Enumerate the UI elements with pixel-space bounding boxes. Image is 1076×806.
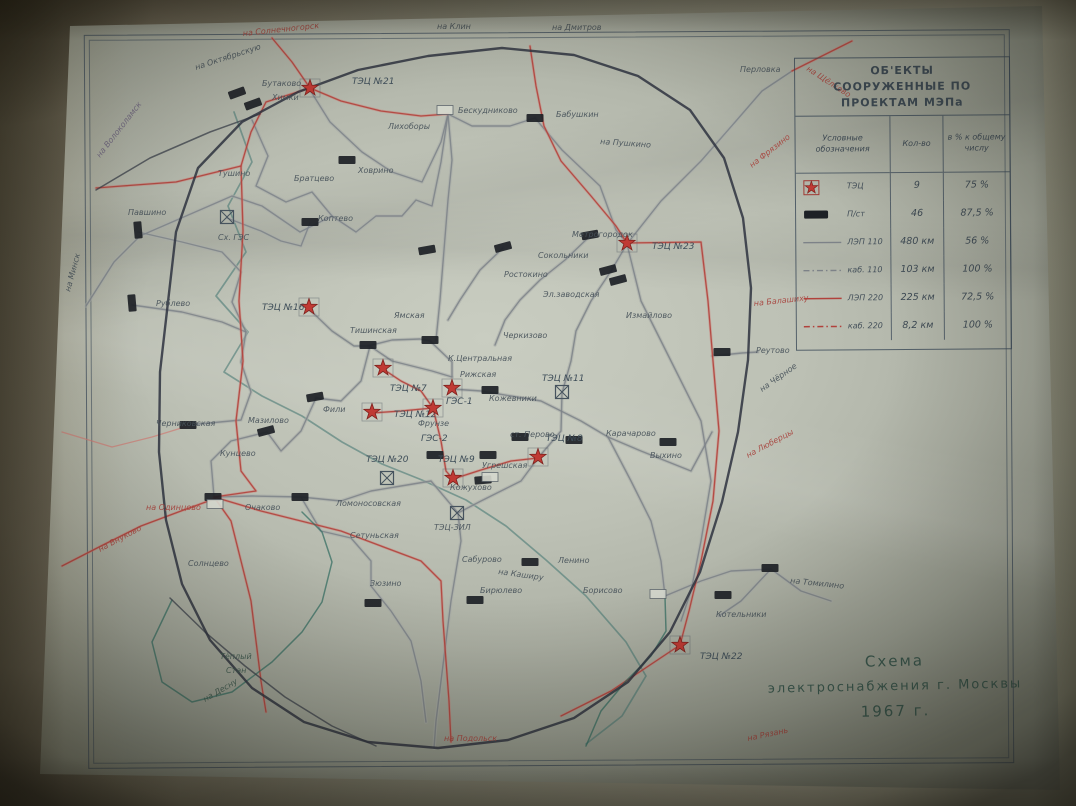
map-label: Бабушкин	[556, 110, 599, 119]
map-label: Бутаково	[262, 79, 301, 88]
map-label: Сабурово	[462, 555, 502, 564]
tec-star: ТЭЦ №22	[670, 636, 743, 662]
legend-row-pct: 100 %	[943, 255, 1010, 283]
tec-star-icon	[801, 179, 843, 195]
map-label: Кунцево	[220, 449, 256, 458]
legend-row-label: каб. 110	[847, 265, 882, 276]
map-title-block: Схема электроснабжения г. Москвы 1967 г.	[761, 649, 1028, 723]
map-label: Рижская	[460, 370, 496, 379]
legend-row-symbol: ТЭЦ	[796, 173, 890, 202]
map-label: на Люберцы	[745, 427, 795, 459]
map-label: на Солнечногорск	[242, 21, 319, 38]
line-110-icon	[801, 235, 843, 251]
power-line-110-halo	[132, 305, 246, 332]
legend-row-label: П/ст	[847, 210, 865, 221]
map-label: Перловка	[740, 65, 781, 74]
map-label: Павшино	[128, 208, 166, 217]
map-label: на Октябрьскую	[194, 42, 262, 72]
substation-marker	[292, 493, 309, 501]
legend-row-pct: 72,5 %	[944, 283, 1011, 311]
legend-row-symbol: ЛЭП 220	[797, 284, 891, 313]
substation-marker	[467, 596, 484, 604]
legend-row-symbol: каб. 220	[797, 312, 891, 341]
power-line-110-halo	[211, 398, 316, 497]
junction-box	[207, 500, 223, 509]
map-label: на Внуково	[97, 523, 143, 553]
substation-marker	[302, 218, 319, 226]
station-label: ТЭЦ №11	[542, 374, 584, 384]
power-line-110-halo	[448, 248, 503, 320]
legend-row-symbol: П/ст	[796, 201, 890, 230]
legend-col-pct: в % к общему числу	[942, 115, 1009, 172]
map-label: Фрунзе	[418, 419, 449, 428]
cable-110-icon	[801, 263, 843, 279]
map-label: Рублево	[156, 299, 190, 308]
legend-row-qty: 9	[890, 172, 943, 200]
substation-marker	[228, 86, 247, 99]
substation-marker	[360, 341, 377, 349]
map-label: Измайлово	[626, 311, 672, 320]
substation-marker	[714, 348, 731, 356]
substation-marker	[522, 558, 539, 566]
junction-box	[650, 590, 666, 599]
map-label: Ростокино	[504, 270, 548, 279]
tec-label: ТЭЦ №21	[352, 77, 394, 87]
tec-star: ТЭЦ №21	[300, 77, 394, 97]
substation-marker	[494, 241, 512, 253]
map-label: Реутово	[756, 346, 790, 355]
map-label: Коптево	[318, 214, 353, 223]
map-label: на Клин	[437, 22, 471, 31]
map-label: Сетуньская	[350, 531, 399, 540]
line-220-icon	[802, 290, 844, 306]
map-label: на Пушкино	[600, 137, 652, 150]
tec-label: ТЭЦ №16	[262, 303, 305, 313]
junction-box	[482, 473, 498, 482]
junction-box	[437, 106, 453, 115]
legend-row-symbol: каб. 110	[796, 256, 890, 285]
power-line-220-halo	[214, 497, 266, 712]
power-line-220	[214, 497, 266, 712]
tec-star: ТЭЦ №16	[262, 298, 319, 316]
photo-of-wall-map: ТЭЦ №11ТЭЦ №20ТЭЦ №21ТЭЦ №23ТЭЦ №16ТЭЦ №…	[0, 0, 1076, 806]
substation-marker	[762, 564, 779, 572]
legend-row-label: ЛЭП 220	[848, 293, 884, 304]
substation-marker	[609, 274, 627, 286]
tec-label: ГЭС-2	[421, 434, 448, 444]
map-label: ст. Перово	[510, 430, 555, 439]
map-label: Котельники	[716, 610, 766, 619]
legend-row-qty: 103 км	[890, 256, 943, 284]
map-label: ТЭЦ-ЗИЛ	[434, 523, 471, 532]
map-label: на Минск	[63, 252, 82, 292]
map-label: Ямская	[393, 311, 425, 320]
substation-marker	[660, 438, 677, 446]
substation-marker	[339, 156, 356, 164]
power-line-110-pink	[62, 426, 188, 447]
tec-label: ТЭЦ №23	[652, 242, 695, 252]
map-label: Черкизово	[503, 331, 547, 340]
legend-row-pct: 56 %	[943, 228, 1010, 256]
legend-table: ОБ'ЕКТЫ СООРУЖЕННЫЕ ПО ПРОЕКТАМ МЭПа Усл…	[794, 56, 1012, 351]
map-label: Стан	[226, 666, 246, 675]
legend-row-label: ТЭЦ	[847, 182, 864, 193]
power-line-110-halo	[316, 346, 370, 401]
map-label: Мазилово	[248, 416, 289, 425]
legend-grid: Условные обозначения Кол-во в % к общему…	[795, 115, 1011, 340]
tec-label: ГЭС-1	[446, 397, 473, 407]
map-label: Химки	[271, 93, 299, 102]
map-label: на Рязань	[747, 725, 790, 742]
map-label: на Подольск	[444, 734, 497, 743]
power-line-110-halo	[608, 437, 665, 596]
map-label: Тишинская	[350, 326, 397, 335]
power-line-110-halo	[538, 244, 627, 458]
map-label: Бирюлево	[480, 586, 522, 595]
map-label: Сокольники	[538, 251, 589, 260]
power-line-110	[538, 244, 627, 458]
tec-star: ГЭС-1	[442, 379, 473, 407]
power-line-220-halo	[310, 88, 448, 116]
substation-marker	[133, 221, 142, 239]
legend-row-qty: 480 км	[890, 228, 943, 256]
map-label: Карачарово	[606, 429, 656, 438]
substation-marker	[527, 114, 544, 122]
map-label: на Фрязино	[748, 132, 792, 169]
substation-marker	[480, 451, 497, 459]
tec-label: ТЭЦ №7	[390, 384, 427, 394]
legend-title-line1: ОБ'ЕКТЫ	[799, 62, 1005, 79]
map-label: Кожевники	[489, 394, 537, 403]
substation-marker	[244, 97, 263, 110]
substation-marker	[715, 591, 732, 599]
tec-label: ТЭЦ №22	[700, 652, 743, 662]
map-label: на Чёрное	[758, 361, 799, 393]
legend-row-symbol: ЛЭП 110	[796, 228, 890, 257]
map-label: Метрогородок	[572, 230, 633, 239]
map-label: Тёплый	[220, 652, 252, 661]
map-label: Лихоборы	[387, 122, 430, 131]
map-label: на Каширу	[498, 567, 545, 582]
cable-220-icon	[802, 318, 844, 334]
map-label: Ломоносовская	[335, 499, 401, 508]
map-label: Тушино	[218, 169, 250, 178]
map-label: на Одинцово	[146, 503, 201, 512]
map-label: Солнцево	[188, 559, 229, 568]
map-label: Угрешская	[482, 461, 528, 470]
substation-rect-icon	[801, 207, 843, 223]
power-line-220-halo	[561, 645, 680, 716]
legend-row-label: каб. 220	[848, 321, 883, 332]
map-label: Фили	[323, 405, 345, 414]
map-label: Сх. ГЭС	[218, 233, 249, 242]
substation-marker	[127, 294, 136, 312]
map-label: К.Центральная	[448, 354, 512, 363]
map-label: Ховрино	[357, 166, 394, 175]
legend-title: ОБ'ЕКТЫ СООРУЖЕННЫЕ ПО ПРОЕКТАМ МЭПа	[795, 57, 1009, 116]
legend-row-pct: 75 %	[943, 172, 1010, 200]
legend-row-pct: 87,5 %	[943, 200, 1010, 228]
substation-marker	[306, 392, 324, 403]
power-line-110	[608, 437, 665, 596]
map-title-line2: электроснабжения г. Москвы	[762, 676, 1028, 697]
map-label: Зюзино	[370, 579, 402, 588]
tec-label: ТЭЦ №9	[438, 455, 475, 465]
map-label: Ленино	[557, 556, 590, 565]
legend-row-pct: 100 %	[944, 311, 1011, 339]
map-label: Очаково	[245, 503, 280, 512]
legend-row-label: ЛЭП 110	[847, 237, 883, 248]
legend-row-qty: 46	[890, 200, 943, 228]
legend-row-qty: 8,2 км	[891, 312, 944, 340]
substation-marker	[482, 386, 499, 394]
station-square-icon	[381, 472, 394, 485]
legend-col-symbol: Условные обозначения	[795, 116, 889, 173]
substation-marker	[257, 425, 275, 437]
boundary-line-teal	[586, 597, 666, 746]
substation-marker	[418, 245, 436, 256]
map-label: Эл.заводская	[542, 290, 600, 299]
map-label: на Волоколамск	[94, 100, 143, 159]
legend-col-qty: Кол-во	[889, 116, 942, 173]
map-label: на Дмитров	[552, 23, 602, 32]
map-label: Бескудниково	[458, 106, 518, 115]
legend-title-line2: СООРУЖЕННЫЕ ПО ПРОЕКТАМ МЭПа	[799, 78, 1005, 111]
station-label: ТЭЦ №20	[366, 455, 409, 465]
substation-marker	[365, 599, 382, 607]
legend-row-qty: 225 км	[891, 284, 944, 312]
map-label: Выхино	[650, 451, 682, 460]
map-label: Братцево	[294, 174, 334, 183]
map-label: Борисово	[583, 586, 623, 595]
substation-marker	[422, 336, 439, 344]
map-label: Черниковская	[156, 419, 215, 428]
map-label: Кожухово	[450, 483, 492, 492]
